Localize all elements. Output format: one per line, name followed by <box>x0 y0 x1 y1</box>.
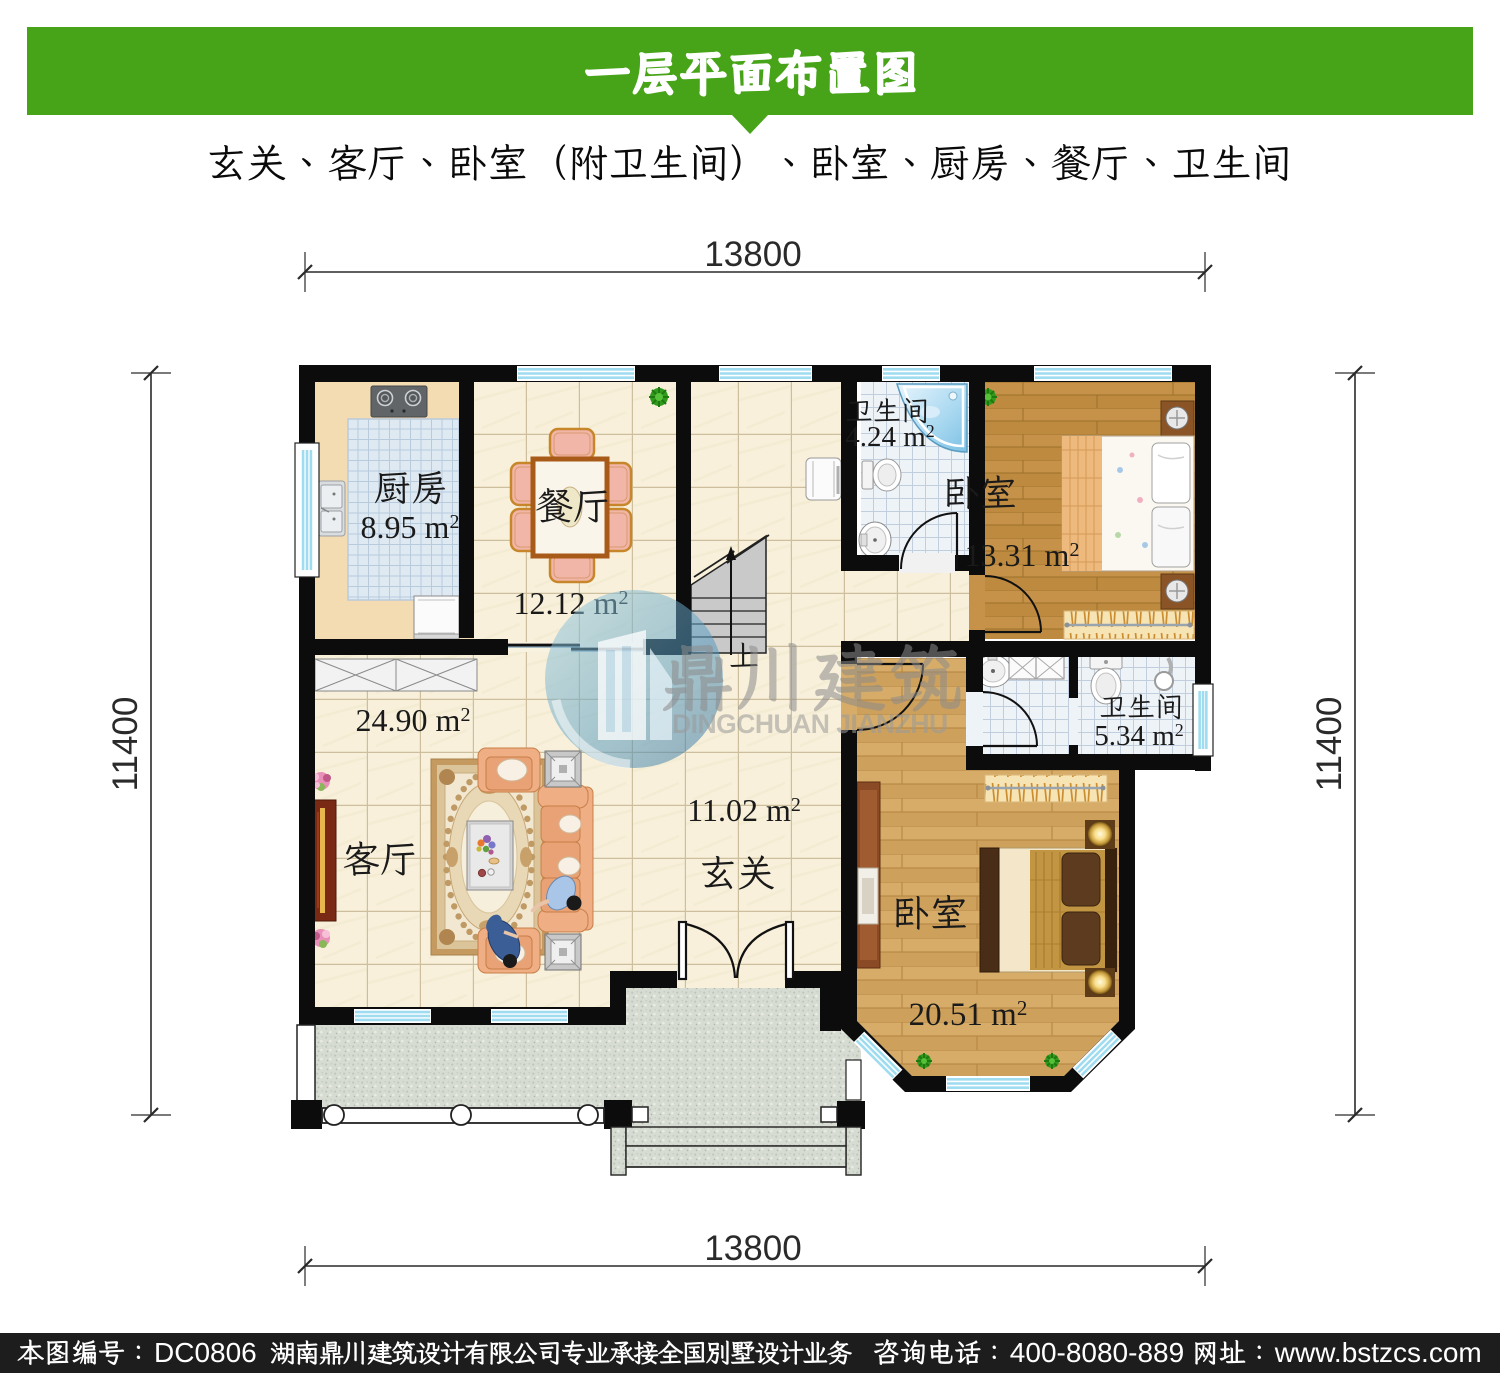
svg-text:11400: 11400 <box>1310 697 1349 792</box>
svg-text:DC0806: DC0806 <box>154 1337 257 1368</box>
svg-text:20.51 m2: 20.51 m2 <box>909 996 1028 1033</box>
svg-text:DINGCHUAN JIANZHU: DINGCHUAN JIANZHU <box>672 709 948 739</box>
svg-text:11400: 11400 <box>106 697 145 792</box>
svg-text:11.02 m2: 11.02 m2 <box>687 792 801 828</box>
svg-text:4.24 m2: 4.24 m2 <box>845 421 935 453</box>
svg-text:8.95 m2: 8.95 m2 <box>361 509 460 545</box>
svg-text:13.31 m2: 13.31 m2 <box>965 537 1080 573</box>
svg-text:400-8080-889: 400-8080-889 <box>1010 1337 1184 1368</box>
svg-text:www.bstzcs.com: www.bstzcs.com <box>1274 1337 1482 1368</box>
svg-text:13800: 13800 <box>704 1229 801 1268</box>
svg-text:13800: 13800 <box>704 235 801 274</box>
svg-text:24.90 m2: 24.90 m2 <box>356 702 471 738</box>
svg-text:5.34 m2: 5.34 m2 <box>1094 720 1184 752</box>
